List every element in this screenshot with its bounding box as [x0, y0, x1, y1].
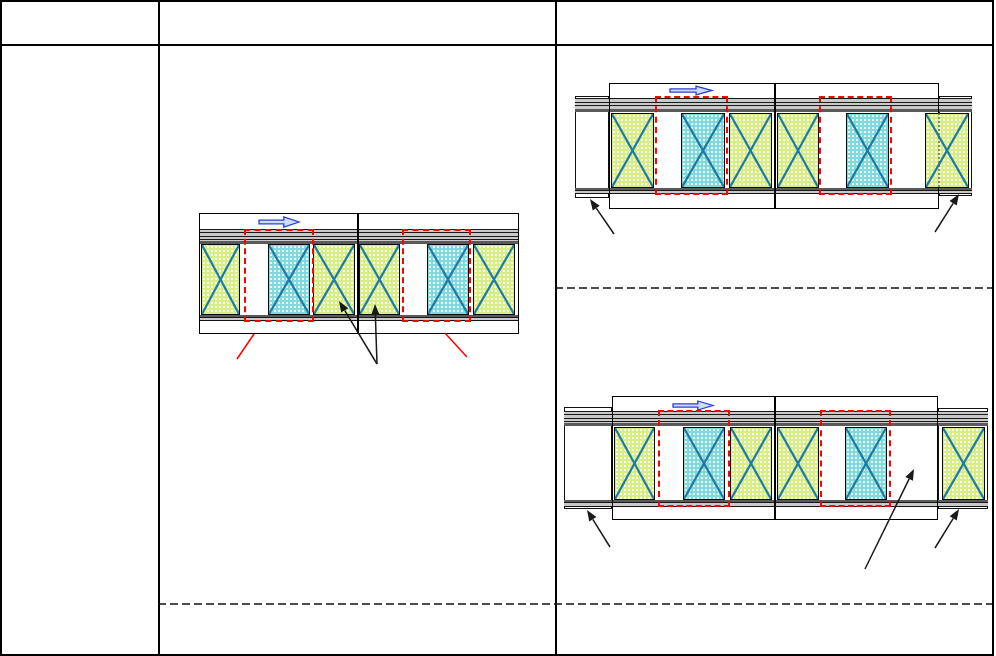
panel-green [359, 244, 400, 315]
panel-cross-brace-icon [730, 114, 771, 187]
callout-arrowhead-icon [587, 510, 596, 522]
panel-green [614, 427, 655, 500]
callout-arrowhead-icon [590, 199, 600, 210]
drawing-sheet [0, 0, 994, 656]
panel-cross-brace-icon [360, 245, 399, 314]
panel-green [942, 427, 985, 500]
panel-green [925, 113, 969, 188]
panel-green [611, 113, 654, 188]
panel-cross-brace-icon [202, 245, 239, 314]
highlight-dashed-box [244, 229, 314, 322]
panel-green [473, 244, 515, 315]
panel-cross-brace-icon [612, 114, 653, 187]
highlight-dashed-box [655, 96, 728, 195]
panel-cross-brace-icon [778, 428, 818, 499]
highlight-dashed-box [402, 229, 471, 322]
diagram-layer [2, 2, 992, 654]
panel-cross-brace-icon [926, 114, 968, 187]
panel-cross-brace-icon [314, 245, 354, 314]
panel-green [730, 427, 772, 500]
highlight-dashed-box [658, 410, 730, 507]
panel-green [313, 244, 355, 315]
callout-arrowhead-icon [950, 509, 959, 521]
frame-center-divider [774, 83, 776, 209]
panel-green [729, 113, 772, 188]
callout-arrow-line [935, 518, 953, 548]
highlight-dashed-box [820, 410, 891, 507]
red-leader-line [445, 333, 467, 357]
frame-center-divider [774, 396, 776, 520]
panel-green [201, 244, 240, 315]
panel-cross-brace-icon [615, 428, 654, 499]
panel-cross-brace-icon [474, 245, 514, 314]
panel-green [777, 427, 819, 500]
panel-cross-brace-icon [778, 114, 818, 187]
callout-arrow-line [596, 208, 614, 234]
callout-arrow-line [593, 519, 610, 547]
panel-cross-brace-icon [943, 428, 984, 499]
panel-green [777, 113, 819, 188]
red-leader-line [237, 334, 254, 359]
panel-cross-brace-icon [731, 428, 771, 499]
highlight-dashed-box [819, 96, 892, 195]
